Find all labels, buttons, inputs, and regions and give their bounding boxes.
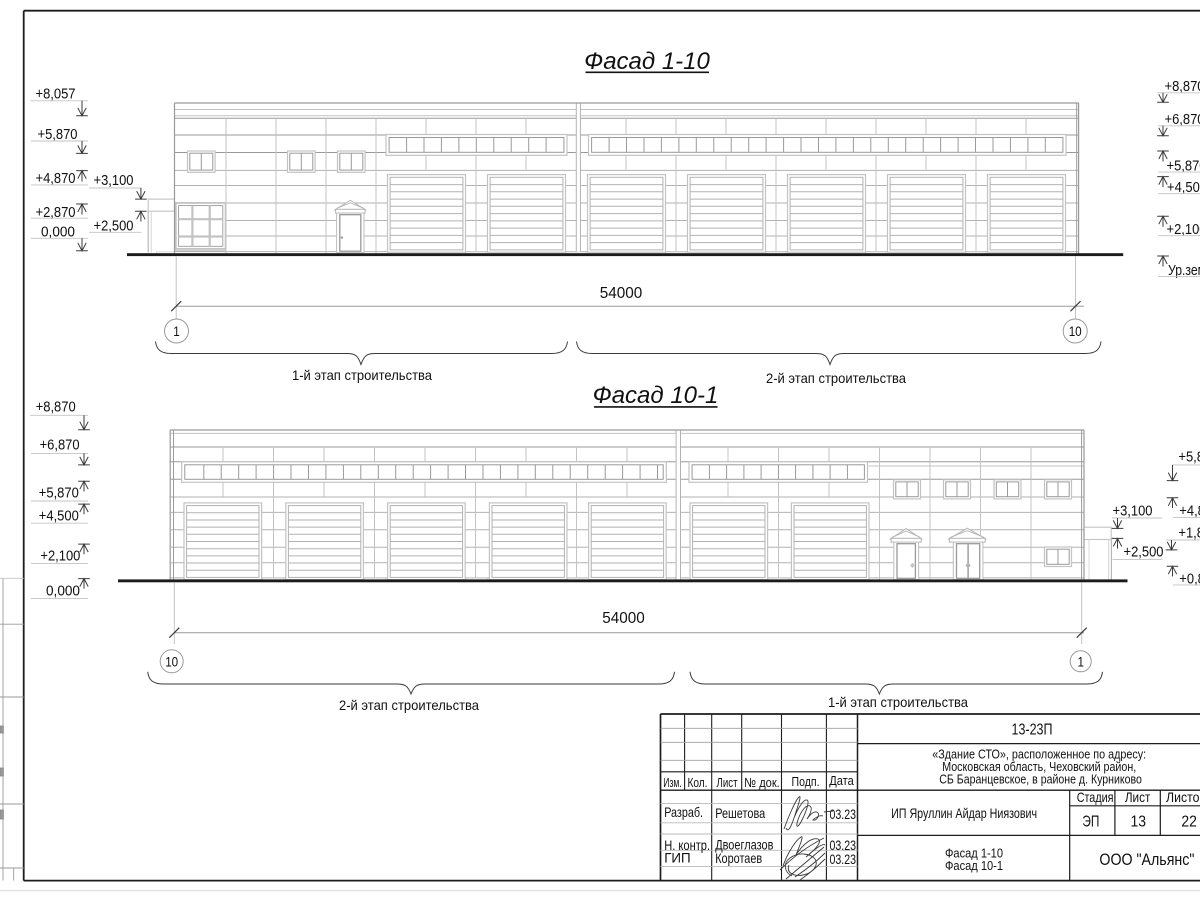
- svg-text:+3,100: +3,100: [1113, 502, 1153, 519]
- svg-text:+8,057: +8,057: [36, 86, 76, 103]
- svg-text:+2,100: +2,100: [40, 547, 80, 564]
- svg-text:1: 1: [173, 323, 180, 339]
- svg-text:СБ Баранцевское, в районе д. К: СБ Баранцевское, в районе д. Курниково: [939, 771, 1142, 786]
- svg-text:+1,870: +1,870: [1178, 525, 1200, 542]
- svg-text:ГИП: ГИП: [664, 850, 691, 866]
- svg-text:1: 1: [1077, 653, 1084, 669]
- svg-text:Лист: Лист: [717, 775, 738, 790]
- svg-text:+4,500: +4,500: [39, 507, 79, 524]
- svg-text:Фасад 10-1: Фасад 10-1: [593, 382, 719, 409]
- svg-text:+5,870: +5,870: [1178, 449, 1200, 466]
- svg-text:Листов: Листов: [1166, 790, 1200, 805]
- svg-text:Фасад 10-1: Фасад 10-1: [945, 858, 1003, 873]
- svg-text:Фасад 1-10: Фасад 1-10: [584, 48, 710, 75]
- svg-text:13-23П: 13-23П: [1012, 722, 1053, 739]
- svg-text:Лист: Лист: [1125, 790, 1151, 805]
- svg-text:10: 10: [1069, 323, 1082, 339]
- svg-text:ЭП: ЭП: [1082, 814, 1099, 831]
- svg-text:54000: 54000: [600, 285, 643, 302]
- svg-text:№ док.: № док.: [744, 775, 780, 790]
- svg-text:03.23: 03.23: [830, 851, 857, 867]
- svg-text:ООО "Альянс": ООО "Альянс": [1099, 850, 1194, 869]
- svg-text:Стадия: Стадия: [1077, 790, 1114, 805]
- svg-text:10: 10: [165, 653, 178, 669]
- svg-text:+3,100: +3,100: [94, 172, 134, 189]
- svg-text:+8,870: +8,870: [36, 399, 76, 416]
- svg-text:22: 22: [1181, 814, 1197, 831]
- svg-text:Подп.: Подп.: [792, 774, 820, 789]
- svg-text:Дата: Дата: [829, 773, 854, 788]
- svg-text:Решетова: Решетова: [715, 805, 765, 821]
- svg-text:03.23: 03.23: [830, 806, 857, 822]
- svg-text:2-й этап строительства: 2-й этап строительства: [339, 698, 479, 713]
- svg-text:Разраб.: Разраб.: [664, 804, 703, 820]
- svg-text:ИП Яруллин Айдар Ниязович: ИП Яруллин Айдар Ниязович: [891, 806, 1037, 821]
- svg-text:+6,870: +6,870: [1165, 111, 1200, 128]
- svg-text:54000: 54000: [602, 610, 645, 627]
- svg-text:1-й этап строительства: 1-й этап строительства: [828, 695, 968, 710]
- svg-text:1-й этап строительства: 1-й этап строительства: [292, 368, 432, 383]
- svg-text:2-й этап строительства: 2-й этап строительства: [766, 371, 906, 386]
- svg-text:0,000: 0,000: [46, 582, 80, 599]
- svg-text:Кол.: Кол.: [688, 775, 708, 790]
- svg-text:Коротаев: Коротаев: [715, 850, 762, 866]
- svg-text:+2,500: +2,500: [1124, 544, 1164, 561]
- svg-text:+5,870: +5,870: [39, 485, 79, 502]
- svg-text:Изм.: Изм.: [663, 775, 682, 790]
- svg-text:+6,870: +6,870: [40, 437, 80, 454]
- svg-text:13: 13: [1131, 814, 1147, 831]
